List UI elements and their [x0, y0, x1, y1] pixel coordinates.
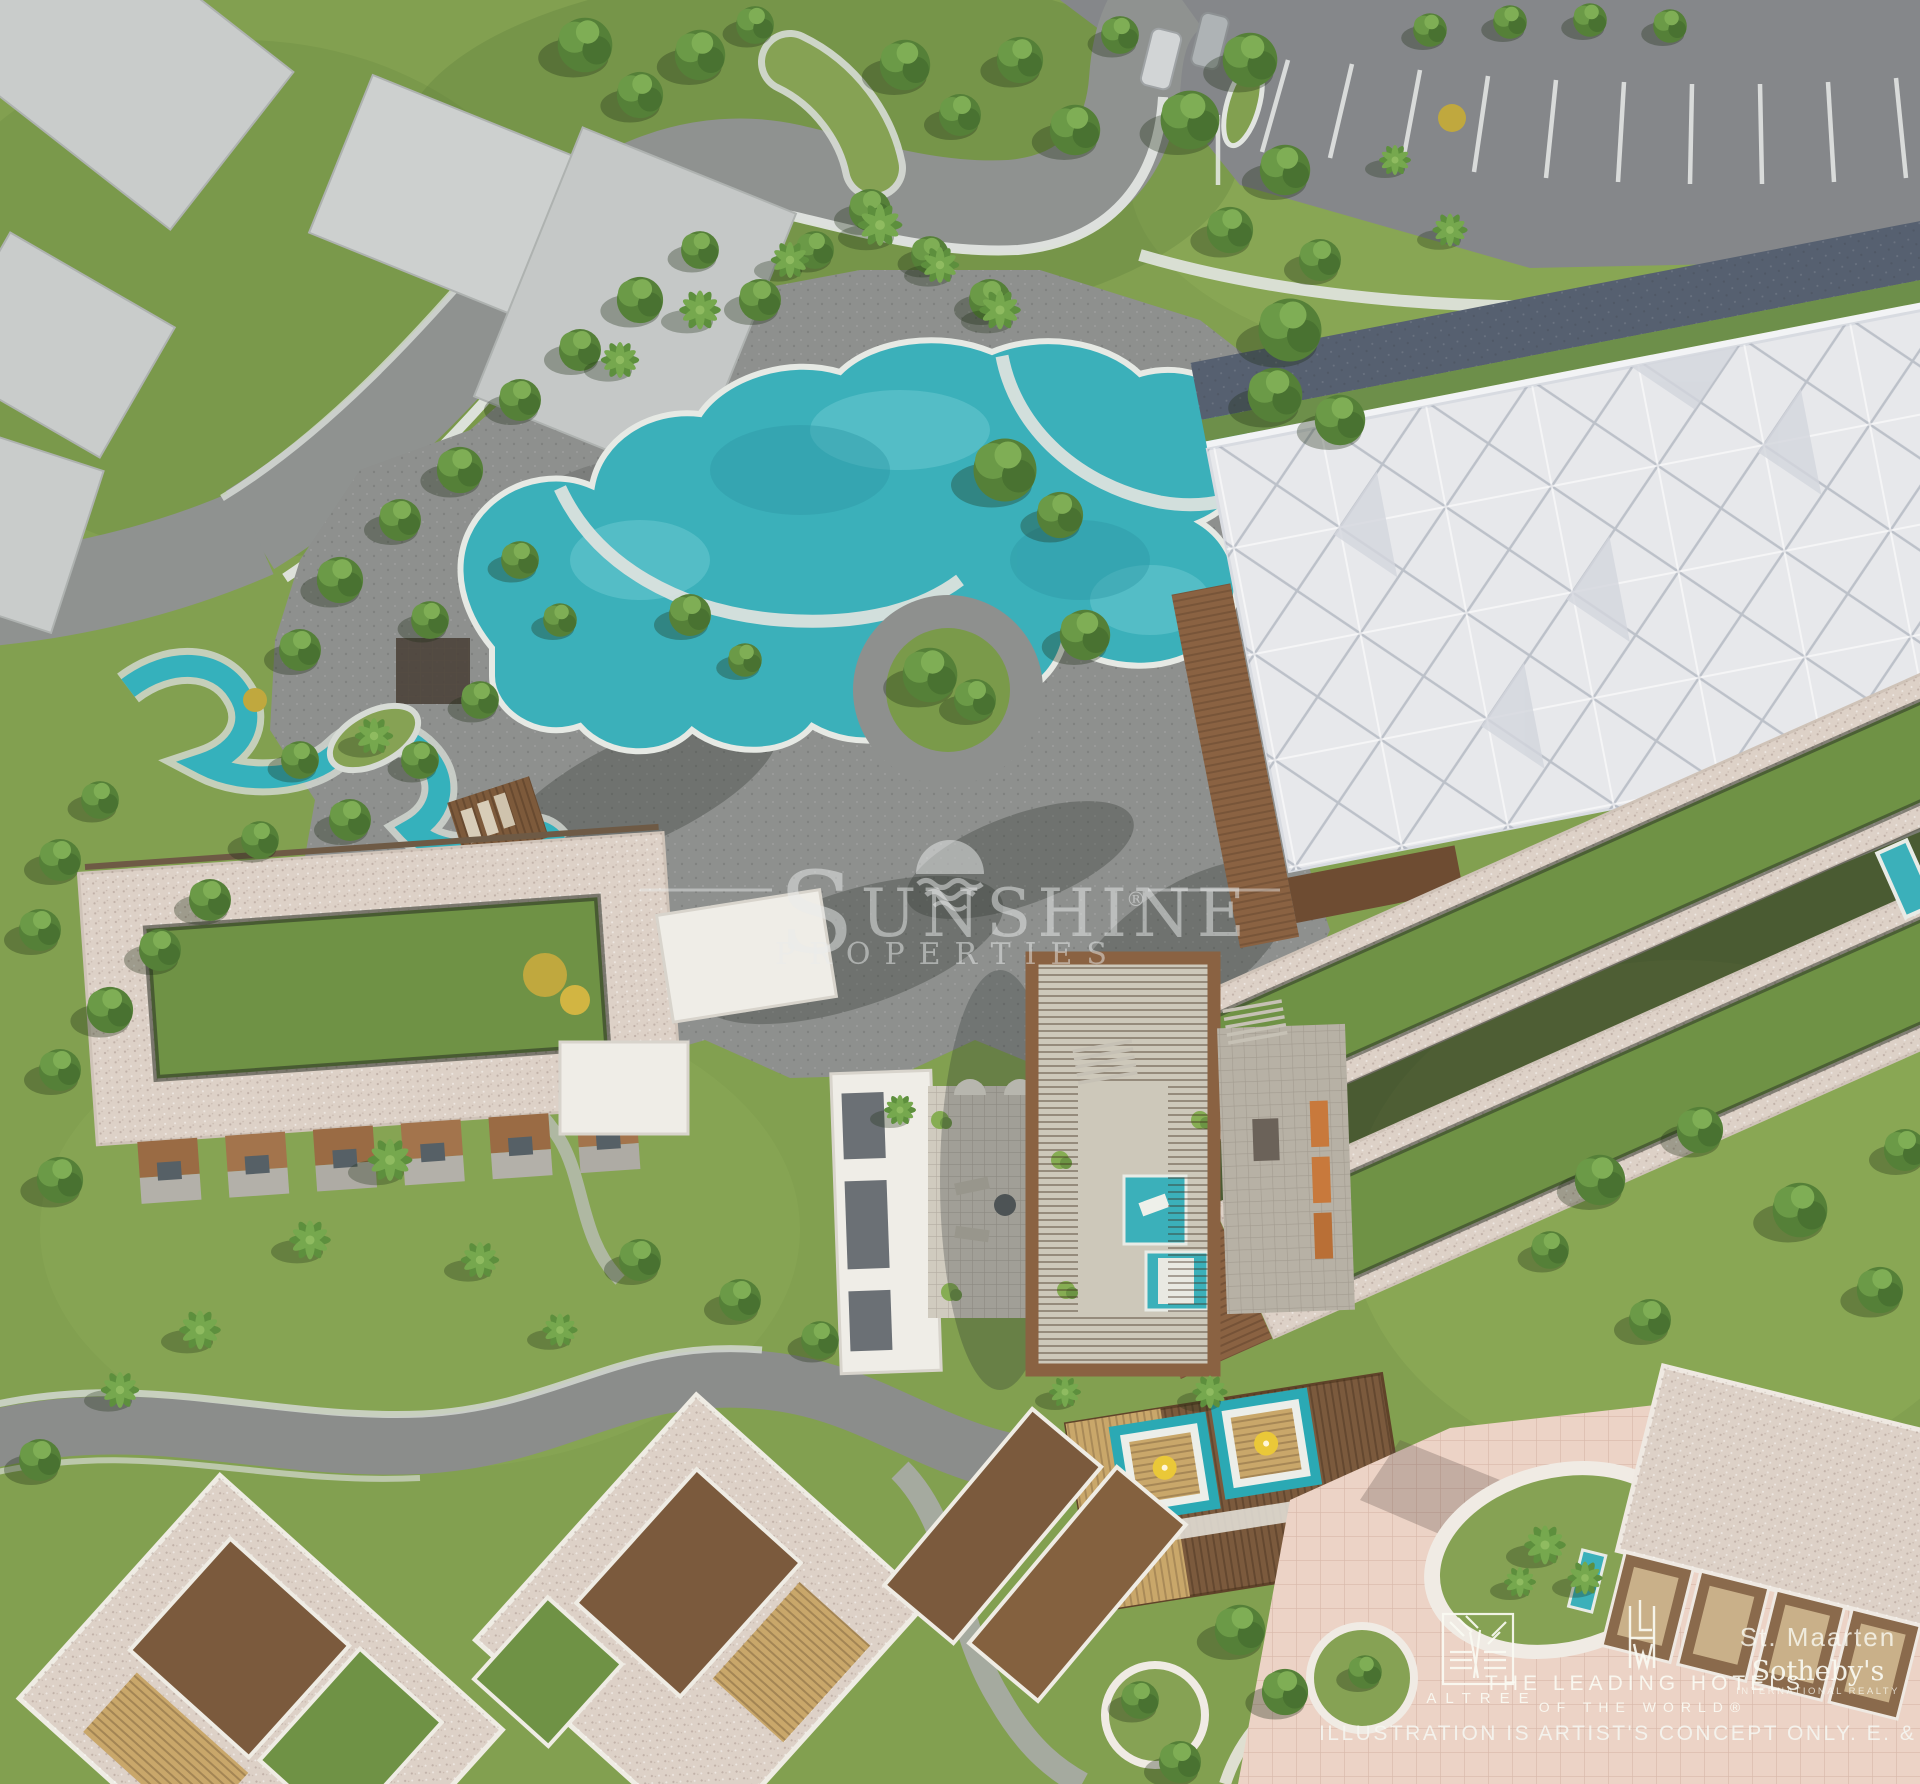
- lounger: [1310, 1101, 1330, 1148]
- site-plan-canvas: SUNSHINE ® PROPERTIES ALTREE: [0, 0, 1920, 1784]
- lounger: [1312, 1156, 1332, 1203]
- sothebys-subtitle: INTERNATIONAL REALTY: [1736, 1686, 1900, 1697]
- watermark-registered-mark: ®: [1126, 887, 1146, 911]
- cabana-unit: [1210, 1387, 1322, 1499]
- sothebys-logo: St. Maarten Sotheby's INTERNATIONAL REAL…: [1736, 1622, 1900, 1697]
- garden-pergola-bench: [396, 638, 470, 704]
- lhw-line2: OF THE WORLD®: [1539, 1699, 1747, 1715]
- courtyard-pergola: [1032, 958, 1214, 1370]
- sothebys-region: St. Maarten: [1740, 1622, 1896, 1652]
- white-roof-small: [560, 1042, 688, 1134]
- lounger: [1314, 1212, 1334, 1259]
- aerial-resort-rendering: SUNSHINE ® PROPERTIES ALTREE: [0, 0, 1920, 1784]
- sothebys-brand: Sotheby's: [1752, 1656, 1885, 1687]
- disclaimer-text: ILLUSTRATION IS ARTIST'S CONCEPT ONLY. E…: [1319, 1722, 1920, 1745]
- watermark-subtitle: PROPERTIES: [775, 937, 1121, 972]
- dining-terrace: [1217, 1024, 1355, 1314]
